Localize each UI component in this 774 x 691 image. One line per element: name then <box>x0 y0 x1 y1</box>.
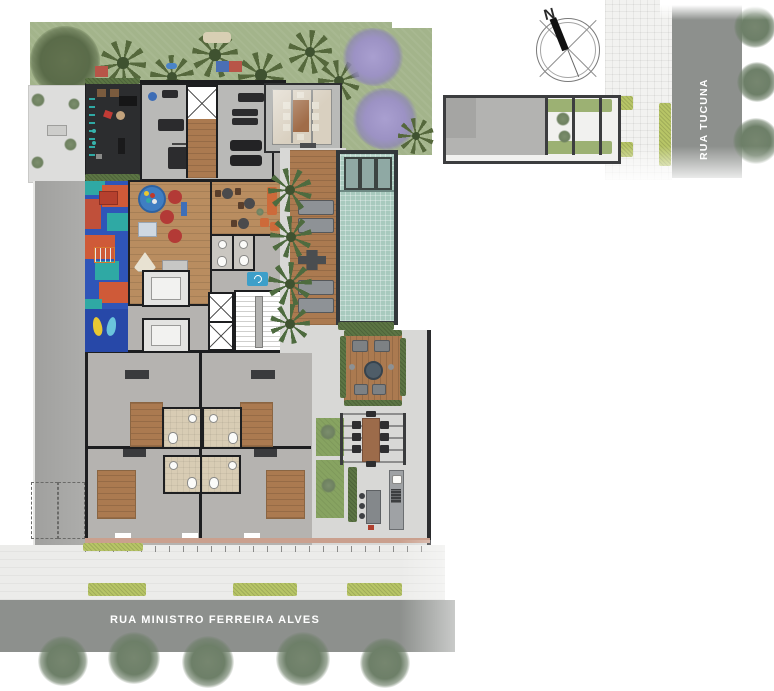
cafe-chair <box>231 220 237 227</box>
sink-icon <box>392 475 402 484</box>
sink-icon <box>218 240 227 249</box>
pergola-chair <box>352 445 361 453</box>
entry-hall-wood <box>186 119 218 178</box>
driveway <box>443 95 621 164</box>
unit-kitchenette <box>254 449 277 457</box>
crate <box>110 89 119 97</box>
sidewalk-hedge <box>83 543 143 551</box>
unit-bathroom <box>162 407 202 449</box>
south-fade <box>400 540 550 691</box>
glass-dining-room <box>264 83 342 153</box>
pergola-dining <box>340 413 406 465</box>
site-plan: N RUA TUCUNA <box>0 0 774 691</box>
red-cooler <box>368 525 374 530</box>
grill-icon <box>391 489 401 503</box>
pouf-red <box>168 229 182 243</box>
cafe-table <box>222 188 233 199</box>
lawn-shrub <box>321 478 336 493</box>
unit-kitchenette <box>123 449 146 457</box>
cafe-table <box>244 198 255 209</box>
pergola-chair <box>380 421 389 429</box>
unit-kitchenette <box>125 370 149 379</box>
driveway-pavement-dark <box>446 98 476 138</box>
outdoor-sofa <box>352 340 368 352</box>
play-mat-blue <box>216 61 229 72</box>
weight-bench <box>232 118 258 125</box>
plant-pot <box>256 208 264 216</box>
shower-icon <box>252 273 263 284</box>
crate <box>97 89 106 97</box>
side-table <box>349 364 355 370</box>
north-label: N <box>542 5 557 24</box>
street-tree-icon <box>182 636 234 688</box>
cafe-chair <box>215 190 221 197</box>
deck-hedge <box>400 338 406 396</box>
pergola-chair <box>352 433 361 441</box>
toilet-icon <box>168 432 178 444</box>
pergola-post <box>403 413 406 465</box>
unit-bed <box>266 470 305 519</box>
street-tree-icon <box>737 62 774 102</box>
cafe-table <box>238 218 249 229</box>
cable-machine <box>158 119 184 131</box>
bbq-stool <box>359 493 365 499</box>
cafe-chair <box>235 188 241 195</box>
small-equipment <box>96 154 102 159</box>
pouf-red <box>160 210 174 224</box>
pergola-table <box>362 418 380 462</box>
restroom <box>232 234 255 271</box>
pool-south-hedge <box>338 322 394 330</box>
unit-bathroom <box>200 455 241 494</box>
bbq-stool <box>359 513 365 519</box>
unit-kitchenette <box>251 370 275 379</box>
outdoor-gym-terrace <box>86 84 140 176</box>
medicine-ball <box>116 111 125 120</box>
east-boundary-wall <box>427 330 431 545</box>
firepit-deck <box>344 334 402 402</box>
bbq-island <box>366 490 381 524</box>
service-shaft <box>208 321 234 351</box>
jacaranda-tree-icon <box>342 28 404 86</box>
sidewalk-hedge <box>233 583 297 596</box>
unit-bed <box>240 402 273 447</box>
pool <box>336 150 398 325</box>
deck-hedge <box>344 330 402 336</box>
skylight-shaft <box>186 85 218 122</box>
tucuna-bottom-fade <box>600 146 774 206</box>
terrace-hedge <box>85 78 140 84</box>
street-tree-icon <box>108 632 160 684</box>
stair-rail <box>255 296 263 348</box>
playground-climber <box>94 247 115 263</box>
deck-hedge <box>340 336 346 398</box>
kettlebell-red <box>103 110 113 119</box>
fire-pit <box>364 361 383 380</box>
outdoor-chair <box>372 384 386 395</box>
sink-icon <box>169 461 178 470</box>
dot-marker <box>92 141 96 145</box>
armchair-orange <box>260 218 269 227</box>
sink-icon <box>188 414 197 423</box>
street-tree-icon <box>38 636 88 686</box>
play-mat-red <box>95 66 108 77</box>
sink-icon <box>228 461 237 470</box>
play-mat-red <box>229 61 242 72</box>
pouf-red <box>168 190 182 204</box>
bbq-counter <box>389 470 404 530</box>
unit-bathroom <box>163 455 204 494</box>
sandbox <box>203 32 231 43</box>
pergola-chair <box>380 433 389 441</box>
parking-space <box>58 482 85 539</box>
side-table <box>388 364 394 370</box>
gate-bar <box>599 98 602 155</box>
tucuna-top-fade <box>660 0 774 20</box>
toilet-icon <box>239 255 249 266</box>
bbq-hedge <box>348 467 357 522</box>
playground-patch <box>95 261 119 280</box>
bench-dark <box>118 138 125 154</box>
ball-pit <box>138 185 166 213</box>
treadmill <box>230 140 262 151</box>
sink-icon <box>239 240 248 249</box>
pergola-chair <box>380 445 389 453</box>
building-residential-block <box>85 350 320 551</box>
patio-shrub <box>31 156 44 169</box>
compass: N <box>528 4 608 90</box>
deck-hedge <box>344 400 402 406</box>
parking-space <box>31 482 58 539</box>
gate-shrub <box>556 112 570 126</box>
street-tree-icon <box>276 632 330 686</box>
bbq-stool <box>359 503 365 509</box>
exercise-mat <box>119 96 137 106</box>
sink-icon <box>209 414 218 423</box>
gate-bar <box>545 98 548 155</box>
cafe-chair <box>238 202 244 209</box>
kids-table <box>138 222 157 237</box>
outdoor-chair <box>354 384 368 395</box>
toy-shelf-blue <box>181 202 187 216</box>
sidewalk-hedge <box>88 583 146 596</box>
pool-wet-lounger <box>376 157 392 190</box>
gate-bar <box>572 98 575 155</box>
playground-slide <box>99 191 118 205</box>
weight-bench <box>232 109 258 116</box>
color-playground <box>85 181 128 352</box>
patio-shrub <box>68 98 80 110</box>
elevator <box>142 318 190 353</box>
service-shaft <box>208 292 234 323</box>
unit-bathroom <box>202 407 242 449</box>
toilet-icon <box>209 477 219 489</box>
toilet-icon <box>217 256 227 267</box>
gym-ball <box>148 92 157 101</box>
dumbbell-rack <box>238 93 264 102</box>
street-ferreira-alves-label: RUA MINISTRO FERREIRA ALVES <box>0 614 430 626</box>
pergola-chair <box>366 461 376 467</box>
shower-sign <box>247 272 268 286</box>
patio-shrub <box>31 93 45 107</box>
teepee-tent <box>134 252 156 272</box>
patio-shrub <box>64 138 77 151</box>
playground-patch <box>99 282 128 303</box>
ball-pit-balls <box>144 191 149 196</box>
pool-wet-lounger <box>360 157 376 190</box>
play-toy-blue <box>166 63 177 69</box>
gym-shelf <box>162 90 178 98</box>
pergola-post <box>340 413 343 465</box>
treadmill <box>230 155 262 166</box>
playground-patch <box>107 213 128 231</box>
toilet-icon <box>187 477 197 489</box>
pergola-chair <box>352 421 361 429</box>
outdoor-sofa <box>374 340 390 352</box>
dot-marker <box>92 129 96 133</box>
unit-bed <box>130 402 163 447</box>
pool-wet-lounger <box>344 157 360 190</box>
sidewalk-hedge <box>347 583 402 596</box>
unit-bed <box>97 470 136 519</box>
gate-shrub <box>558 130 571 143</box>
pool-lane-line <box>340 190 394 192</box>
toilet-icon <box>228 432 238 444</box>
street-tucuna-label: RUA TUCUNA <box>698 40 710 160</box>
elevator <box>142 270 190 307</box>
restroom <box>210 234 234 271</box>
lawn-shrub <box>320 424 336 440</box>
patio-bench <box>47 125 67 136</box>
glass-sheen <box>272 89 330 143</box>
pergola-chair <box>366 411 376 417</box>
